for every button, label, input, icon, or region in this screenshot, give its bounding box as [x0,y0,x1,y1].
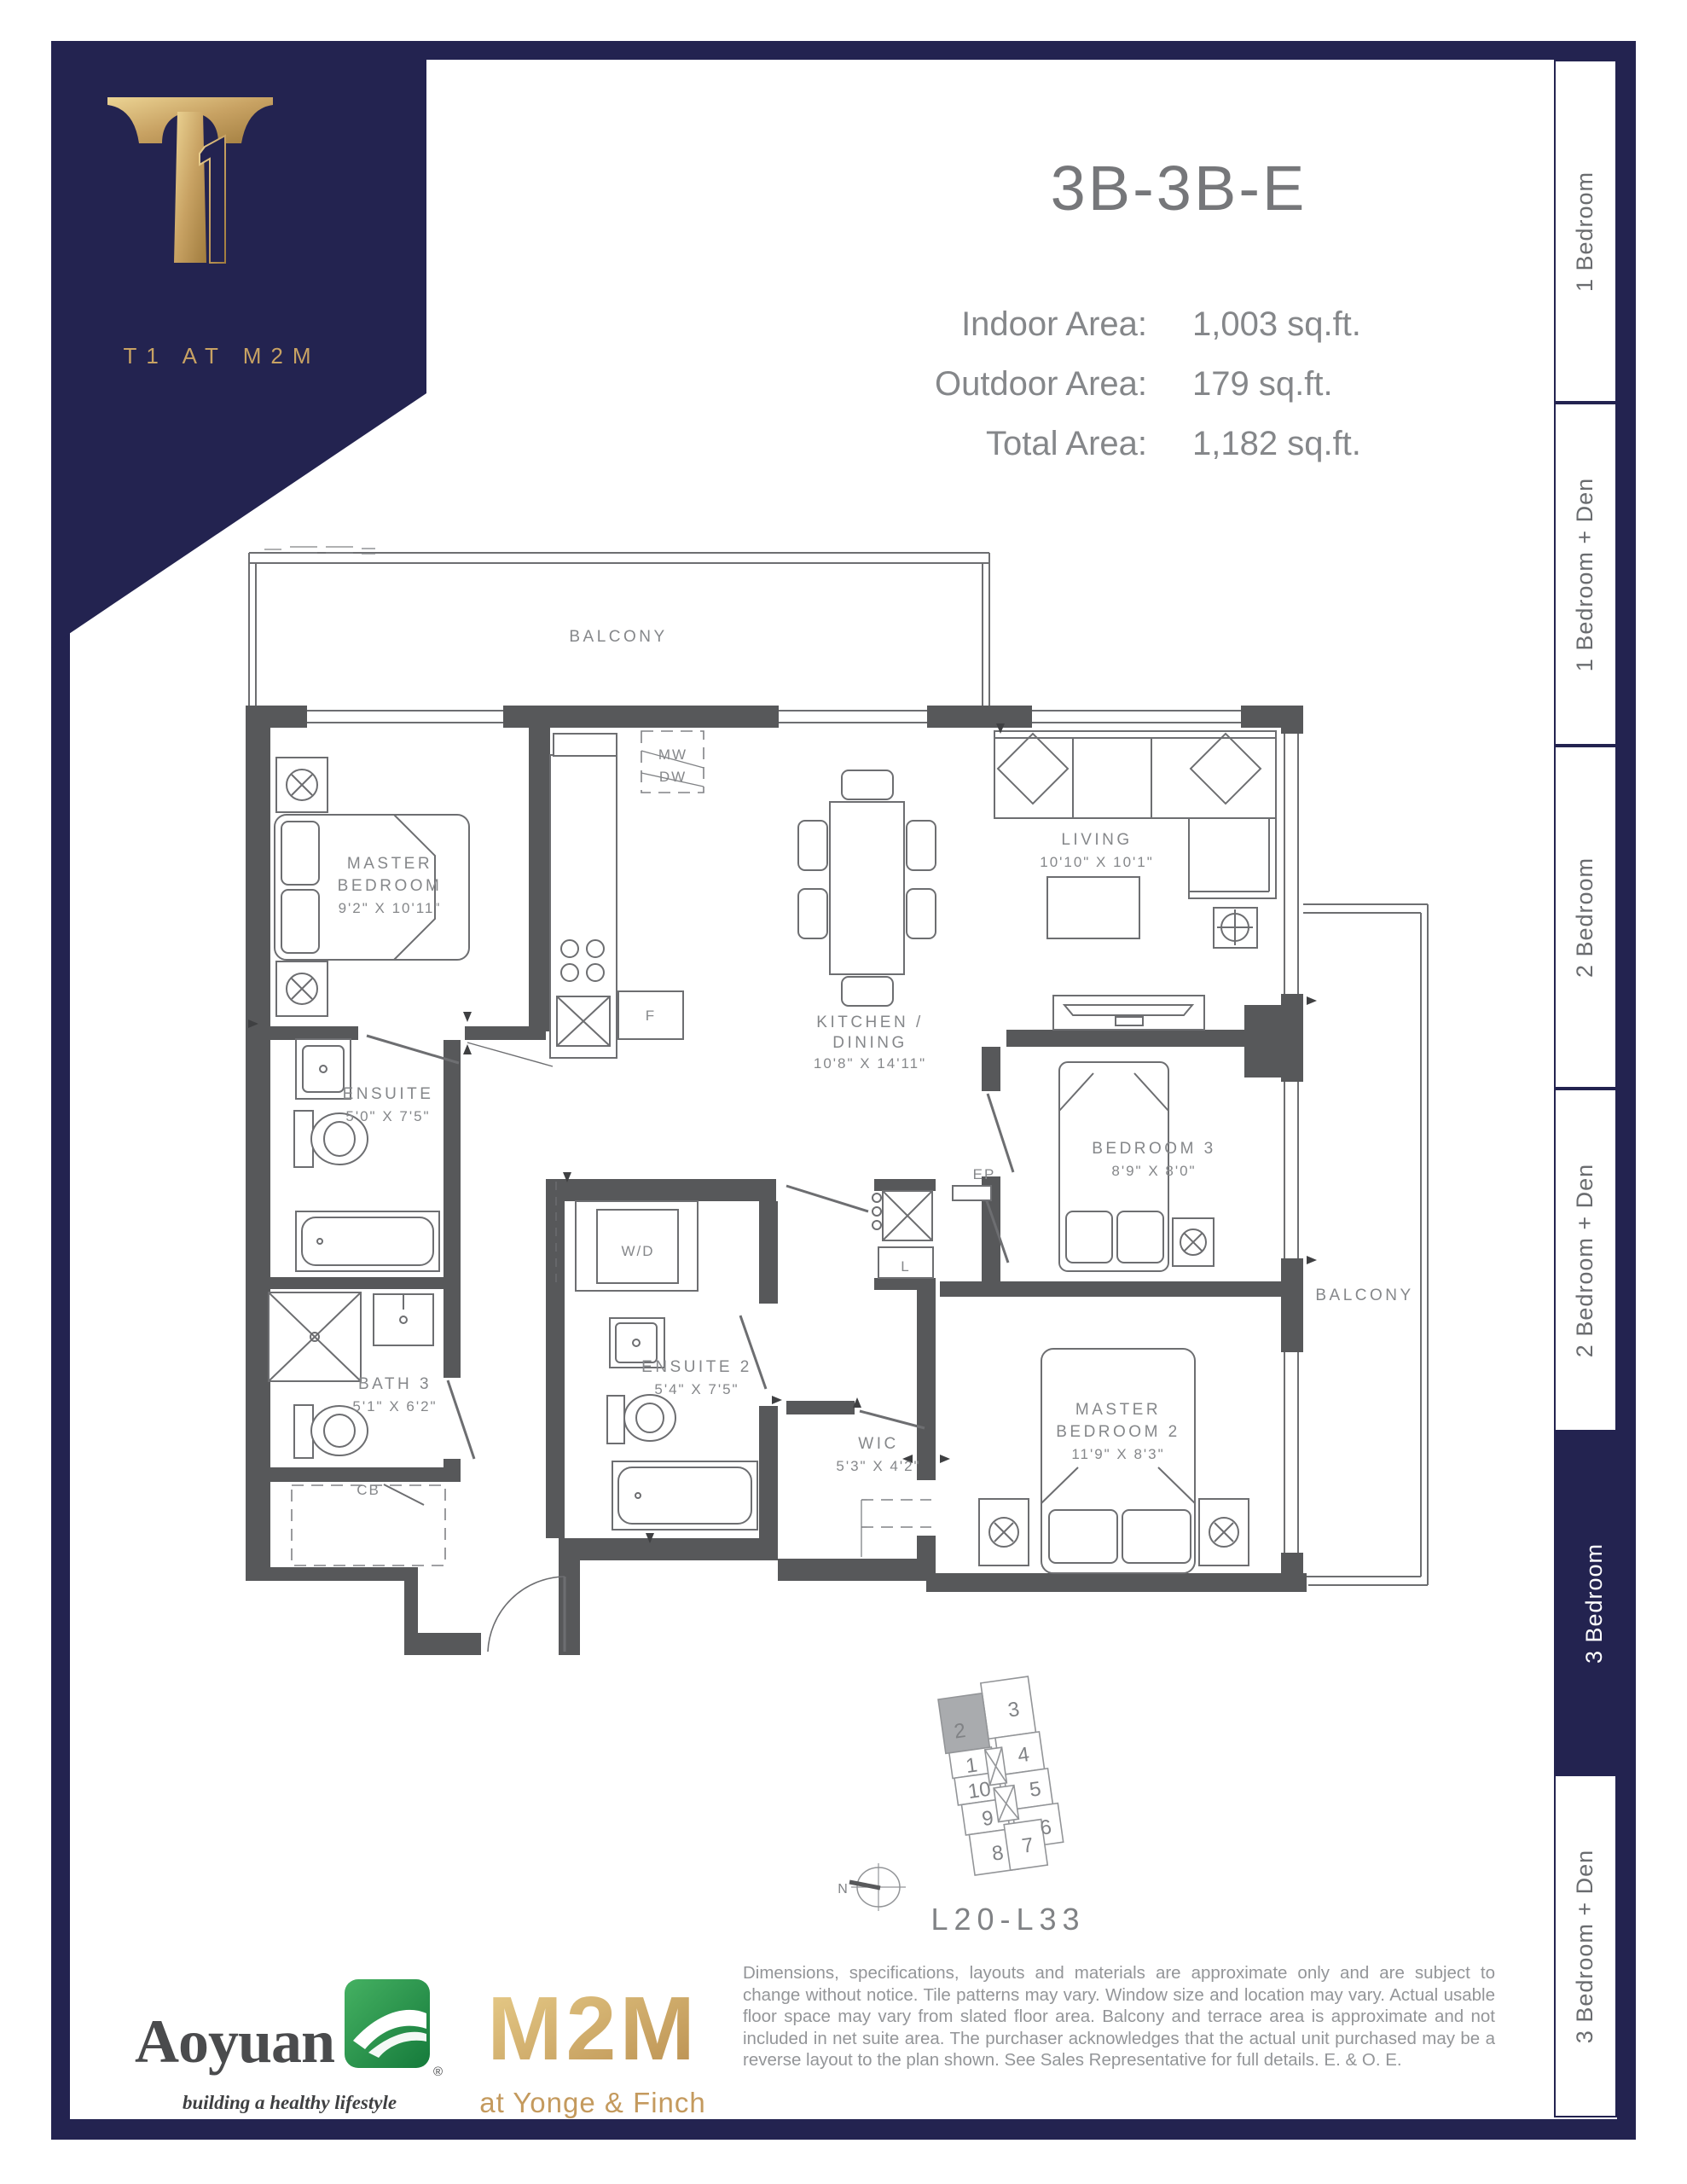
total-area-label: Total Area: [986,425,1147,463]
compass-icon: N [838,1863,906,1911]
outdoor-area-label: Outdoor Area: [935,365,1147,404]
ensuite-fixtures [294,1039,439,1271]
cb-label: CB [357,1482,380,1498]
tab-2-bedroom-den[interactable]: 2 Bedroom + Den [1554,1089,1617,1432]
linen-mech [872,1186,991,1278]
wic-label: WIC [858,1435,898,1453]
wall-wic-bottom [778,1559,936,1581]
living-furniture [994,731,1276,1030]
aoyuan-tagline: building a healthy lifestyle [183,2092,397,2114]
tab-3-bedroom-active[interactable]: 3 Bedroom [1554,1432,1636,1774]
tab-1-bedroom-den-label: 1 Bedroom + Den [1573,477,1599,671]
frame-right [1617,41,1636,2140]
dining-set [798,770,936,1006]
tab-1-bedroom-label: 1 Bedroom [1573,171,1599,291]
total-area-value: 1,182 sq.ft. [1192,425,1361,463]
keyplate: 2 3 1 4 10 5 9 6 8 7 N L20-L33 [802,1664,1109,1945]
tab-2-bedroom[interactable]: 2 Bedroom [1554,746,1617,1089]
wd-label: W/D [621,1243,654,1259]
balcony-top-outline [249,547,989,706]
wic-dims: 5'3" X 4'2" [836,1458,920,1474]
wall-mb2-bottom [926,1573,1307,1592]
keyplate-levels-label: L20-L33 [930,1902,1085,1937]
balcony-right-outline [1303,904,1428,1585]
keyplate-unit-10: 10 [966,1778,992,1804]
m2m-tagline: at Yonge & Finch [465,2087,721,2119]
m2m-logo: M2M [465,1959,721,2082]
tab-3-bedroom-den[interactable]: 3 Bedroom + Den [1554,1774,1617,2117]
bath3-dims: 5'1" X 6'2" [352,1398,437,1414]
balcony-top-label: BALCONY [569,628,667,646]
bath3-label: BATH 3 [358,1375,432,1393]
compass-n-label: N [838,1882,848,1896]
area-row-indoor: Indoor Area: 1,003 sq.ft. [0,305,1687,348]
page-title: 3B-3B-E [923,152,1435,224]
disclaimer-text: Dimensions, specifications, layouts and … [743,1962,1495,2071]
mw-label: MW [658,746,687,763]
master-bedroom2-label-2: BEDROOM 2 [1056,1423,1180,1441]
area-row-outdoor: Outdoor Area: 179 sq.ft. [0,365,1687,408]
balcony-right-label: BALCONY [1315,1287,1413,1304]
wall-left [246,728,270,1567]
tab-1-bedroom-den[interactable]: 1 Bedroom + Den [1554,403,1617,746]
master-bedroom-dims: 9'2" X 10'11" [339,900,442,916]
ensuite2-label: ENSUITE 2 [641,1358,752,1376]
floor-plan-drawing: .wall{fill:#57585a;} .ln{fill:none;strok… [213,529,1458,1689]
wall-bottom-left [246,1567,418,1581]
living-dims: 10'10" X 10'1" [1040,854,1154,870]
bedroom3-dims: 8'9" X 8'0" [1111,1163,1196,1179]
tab-1-bedroom[interactable]: 1 Bedroom [1554,60,1617,403]
master-bedroom2-label-1: MASTER [1075,1401,1161,1419]
ensuite2-dims: 5'4" X 7'5" [654,1381,739,1397]
wall-ensuite2-bottom [559,1538,778,1560]
tab-3-bedroom-label: 3 Bedroom [1582,1542,1609,1663]
aoyuan-logo-text: Aoyuan [135,2007,334,2077]
area-row-total: Total Area: 1,182 sq.ft. [0,425,1687,468]
master-bedroom-label-2: BEDROOM [338,877,443,895]
living-label: LIVING [1061,831,1132,849]
master-bedroom2-dims: 11'9" X 8'3" [1071,1446,1164,1462]
kitchen-label-2: DINING [832,1034,907,1052]
fridge-label: F [646,1008,656,1024]
kitchen-label-1: KITCHEN / [816,1014,923,1031]
ensuite-label: ENSUITE [343,1085,434,1103]
m2m-logo-text: M2M [487,1978,699,2079]
tab-3-bedroom-den-label: 3 Bedroom + Den [1573,1849,1599,2042]
master-bedroom-label-1: MASTER [347,855,432,873]
outdoor-area-value: 179 sq.ft. [1192,365,1333,404]
linen-label: L [901,1258,910,1275]
indoor-area-value: 1,003 sq.ft. [1192,305,1361,344]
aoyuan-registered-mark: ® [433,2065,443,2079]
aoyuan-logo-icon [343,1976,437,2078]
indoor-area-label: Indoor Area: [961,305,1147,344]
ep-label: EP [973,1166,996,1182]
floorplan-sheet: T1 AT M2M 3B-3B-E Indoor Area: 1,003 sq.… [0,0,1687,2184]
wall-entry-bottom-a [404,1633,481,1655]
dw-label: DW [659,769,687,785]
bedroom3-label: BEDROOM 3 [1092,1140,1216,1158]
ensuite-dims: 5'0" X 7'5" [345,1108,430,1124]
wall-entry-step [559,1560,580,1641]
tab-2-bedroom-den-label: 2 Bedroom + Den [1573,1163,1599,1356]
frame-bottom [51,2119,1636,2140]
tab-2-bedroom-label: 2 Bedroom [1573,857,1599,977]
t1-monogram-logo [102,94,281,277]
kitchen-dims: 10'8" X 14'11" [814,1055,926,1072]
